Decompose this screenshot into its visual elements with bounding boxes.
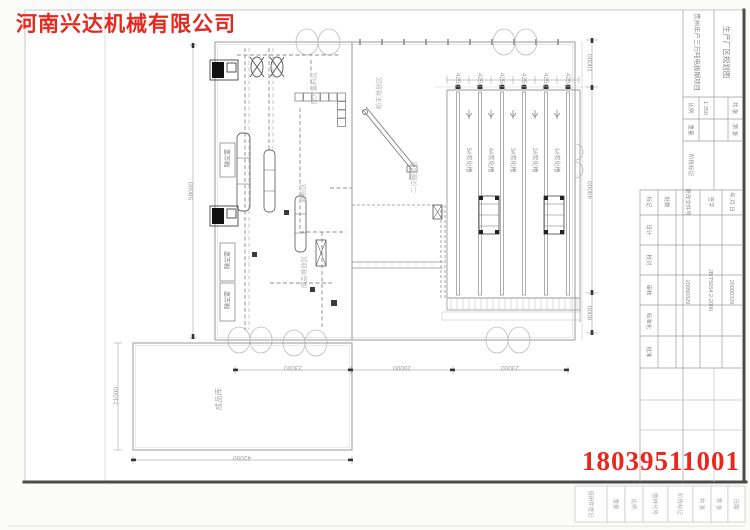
strip-label: 重量 bbox=[612, 498, 620, 510]
dust-room-label: 除尘室 bbox=[224, 251, 232, 269]
area-label-powder: 粉末堆放区 bbox=[374, 76, 383, 109]
scanned-drawing-page: 除尘室 除尘室 除尘室 配方集料区 粉末堆放区 二次搬运区 成品堆放区 磨粉区 … bbox=[0, 0, 750, 530]
strip-label: 日期 bbox=[732, 498, 739, 510]
dim-40000: 40000 bbox=[587, 181, 594, 199]
dim-4250: 4250 bbox=[498, 73, 505, 88]
titleblock-date: 20090329 bbox=[684, 280, 690, 304]
titleblock-sheets-total: 共 张 bbox=[731, 102, 739, 115]
strip-label: 第 张 bbox=[715, 498, 723, 511]
area-label-finished-stack: 成品堆放区 bbox=[299, 255, 308, 288]
titleblock-scale-label: 比例 bbox=[687, 102, 695, 114]
titleblock-sign-row: 设计 bbox=[645, 224, 653, 236]
lane-label: 2#炭化槽 bbox=[531, 148, 539, 173]
area-label-batching: 配方集料区 bbox=[309, 71, 318, 104]
dim-20000: 20000 bbox=[393, 364, 411, 371]
strip-label: 共 张 bbox=[698, 498, 706, 511]
area-label-secondary: 二次搬运区 bbox=[409, 160, 418, 193]
titleblock-sign-row: 审核 bbox=[645, 284, 653, 296]
titleblock-project: 贵州年产三万吨电极糊项目 bbox=[693, 13, 702, 91]
titleblock-sheet-no: 第 张 bbox=[731, 124, 739, 137]
titleblock-drawing-title: 生产厂区规划图 bbox=[722, 26, 732, 79]
area-label-milling: 磨粉区 bbox=[298, 183, 307, 203]
dim-23000-right: 23000 bbox=[501, 364, 519, 371]
company-name: 河南兴达机械有限公司 bbox=[16, 8, 236, 38]
dim-4250: 4250 bbox=[476, 73, 483, 88]
titleblock-standard-code: JB/T5054.2-2000 bbox=[707, 269, 713, 311]
titleblock-rev-header: 签字 bbox=[707, 196, 715, 208]
titleblock-rev-header: 更改文件号 bbox=[684, 188, 692, 216]
dust-room-label: 除尘室 bbox=[224, 291, 232, 309]
lane-label: 4#炭化槽 bbox=[487, 148, 495, 173]
titleblock-weight-label: 重量 bbox=[687, 124, 695, 136]
titleblock-rev-header: 标记 bbox=[645, 196, 653, 208]
dim-8000: 8000 bbox=[587, 305, 594, 320]
dim-4250: 4250 bbox=[520, 73, 527, 88]
titleblock-date: 20090329 bbox=[728, 280, 734, 304]
titleblock-scale-value: 1:350 bbox=[702, 101, 708, 115]
warehouse-label: 成品库 bbox=[213, 387, 223, 410]
dim-21000: 21000 bbox=[113, 387, 120, 405]
dim-42000: 42000 bbox=[233, 454, 251, 461]
dim-10000: 10000 bbox=[587, 54, 594, 72]
dim-23000-left: 23000 bbox=[284, 364, 302, 371]
titleblock-stage-label: 阶段标记 bbox=[687, 154, 695, 177]
titleblock-sign-row: 批准 bbox=[645, 346, 653, 358]
dim-58000: 58000 bbox=[188, 182, 195, 200]
strip-label: 比例 bbox=[630, 498, 638, 510]
titleblock-sign-row: 校对 bbox=[645, 254, 653, 266]
strip-label: 图样代号 bbox=[651, 493, 659, 516]
dust-room-label: 除尘室 bbox=[224, 149, 232, 167]
titleblock-rev-header: 年.月.日 bbox=[728, 192, 736, 212]
titleblock-sign-row: 标准化 bbox=[645, 313, 653, 330]
strip-label: 借用件登记 bbox=[587, 490, 595, 518]
lane-label: 3#炭化槽 bbox=[509, 148, 517, 173]
strip-label: 阶段标记 bbox=[676, 493, 684, 516]
dim-4250: 4250 bbox=[454, 73, 461, 88]
lane-label: 5#炭化槽 bbox=[465, 148, 473, 173]
dim-4250: 4250 bbox=[564, 73, 571, 88]
titleblock-rev-header: 处数 bbox=[663, 196, 671, 208]
lane-label: 1#炭化槽 bbox=[553, 148, 561, 173]
dim-4250: 4250 bbox=[542, 73, 549, 88]
phone-number: 18039511001 bbox=[582, 446, 740, 477]
